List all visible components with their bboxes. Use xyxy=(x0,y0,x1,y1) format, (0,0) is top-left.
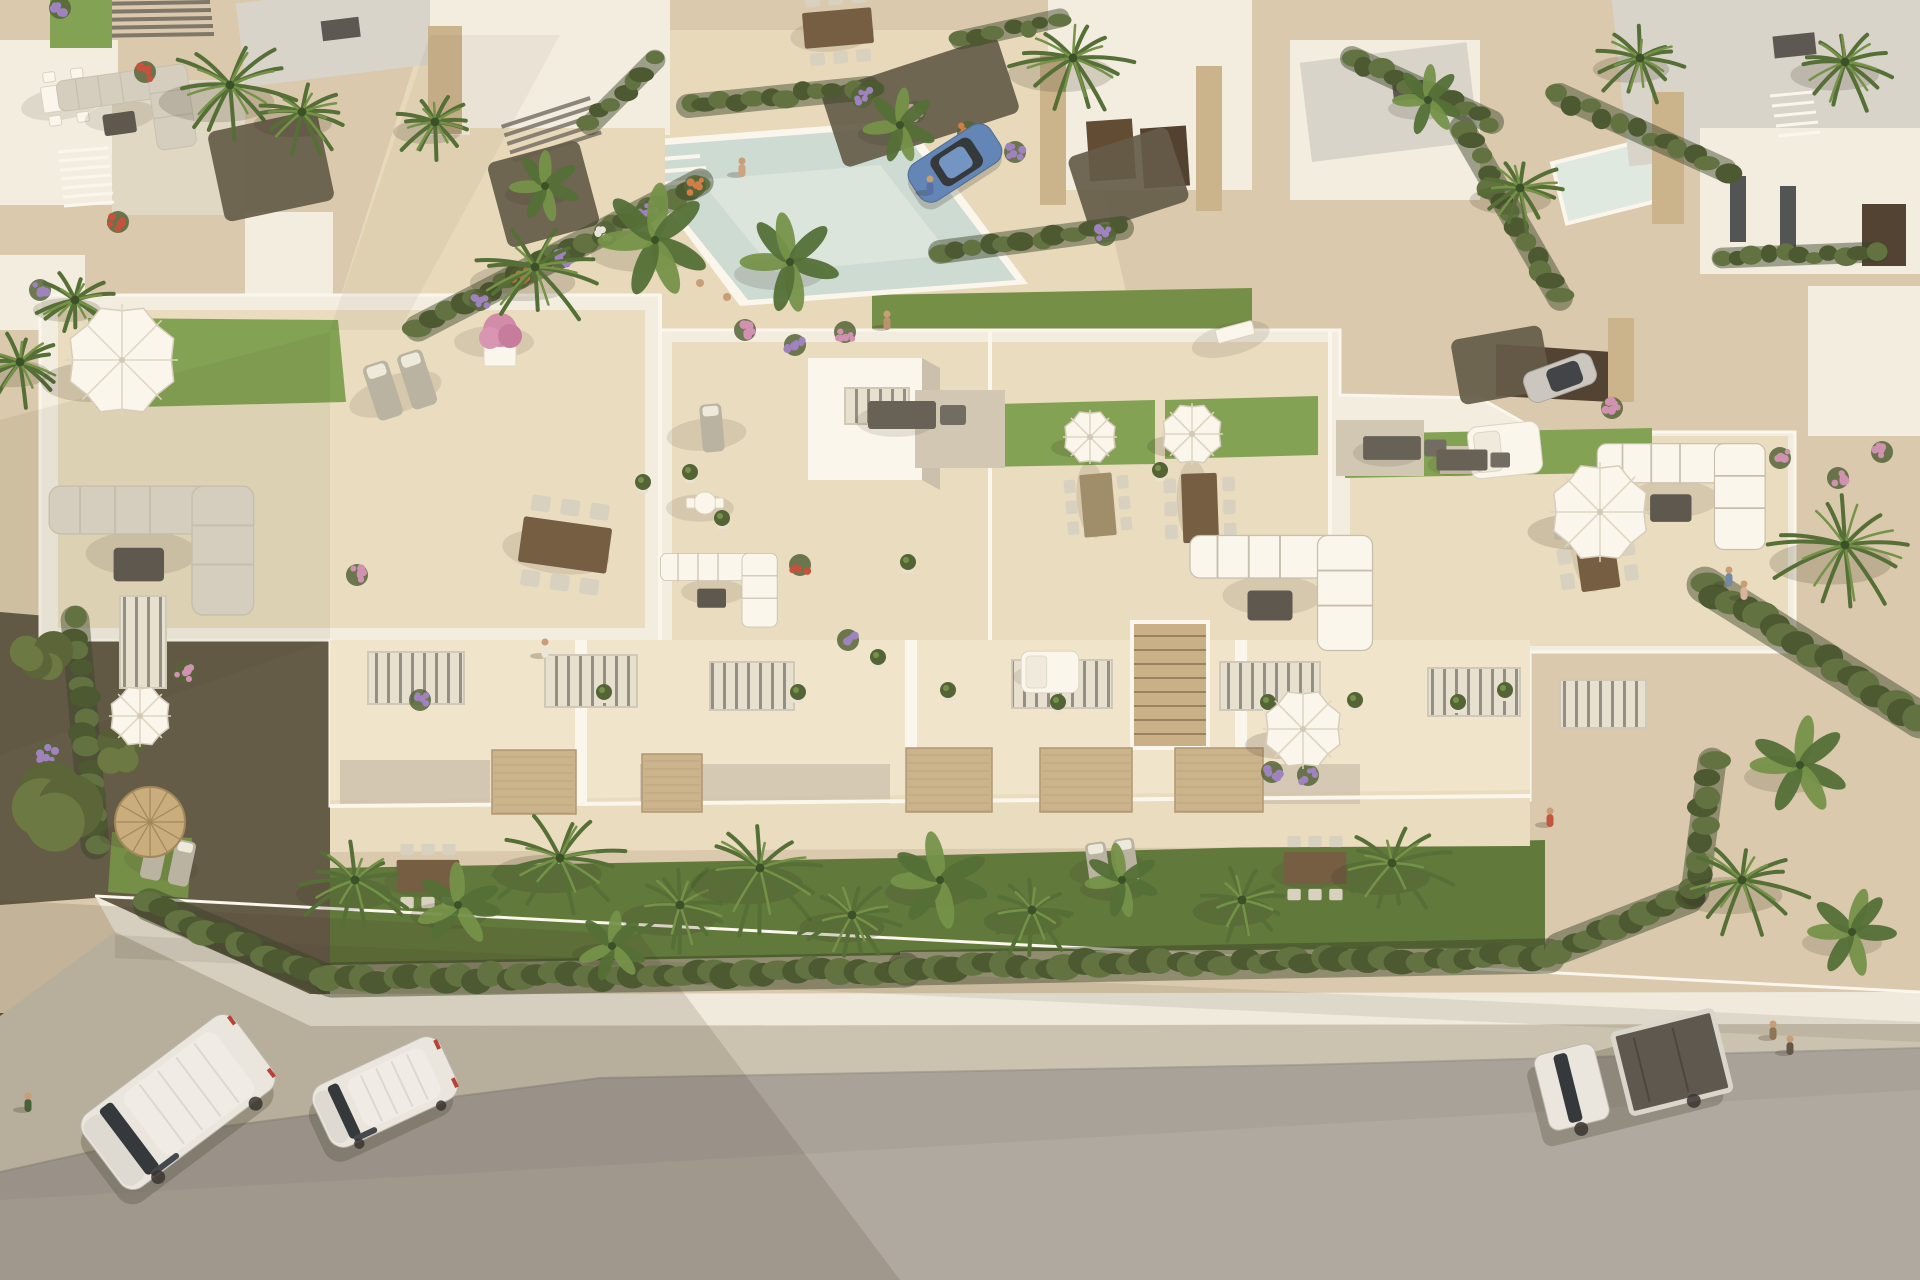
warm-light-overlay xyxy=(0,0,1920,1280)
scene-canvas xyxy=(0,0,1920,1280)
aerial-render xyxy=(0,0,1920,1280)
